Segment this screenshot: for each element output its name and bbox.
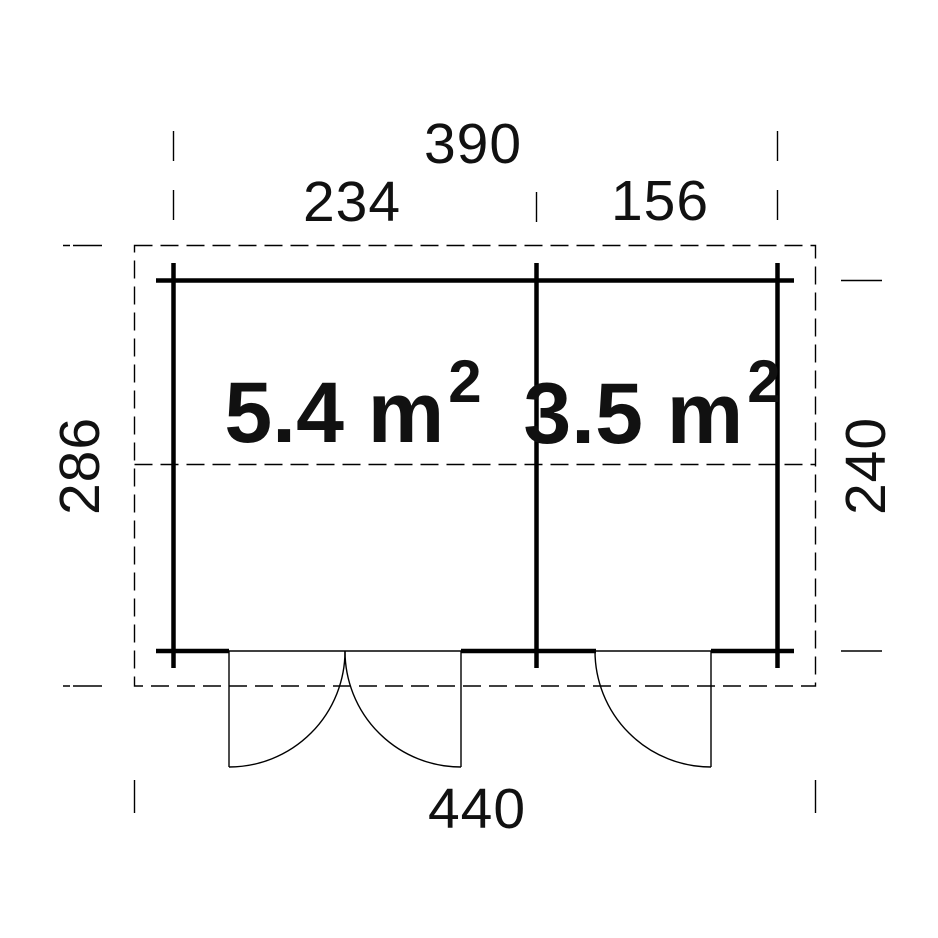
dim-top-right-label: 156 [611,169,709,233]
room-right-area-value: 3.5 m [523,366,743,462]
dim-top-left-label: 234 [303,170,401,234]
room-left-area-label: 5.4 m2 [224,348,481,461]
dim-bottom-total-label: 440 [428,777,526,841]
dim-left-height-label: 286 [48,417,112,515]
double-door-right-swing-arc [345,651,461,767]
room-left-area-exponent: 2 [448,348,481,415]
single-door-swing-arc [595,651,711,767]
dim-right-height-label: 240 [834,417,898,515]
outer-boundary-dashed [135,246,816,687]
floor-plan-page: 390 234 156 286 240 440 5.4 m2 3.5 m2 [0,0,938,938]
dim-top-total-label: 390 [424,112,522,176]
room-right-area-label: 3.5 m2 [523,348,780,462]
double-door-left-swing-arc [229,651,345,767]
floor-plan-canvas: 390 234 156 286 240 440 5.4 m2 3.5 m2 [0,0,938,938]
room-right-area-exponent: 2 [747,348,780,415]
room-left-area-value: 5.4 m [224,365,444,461]
